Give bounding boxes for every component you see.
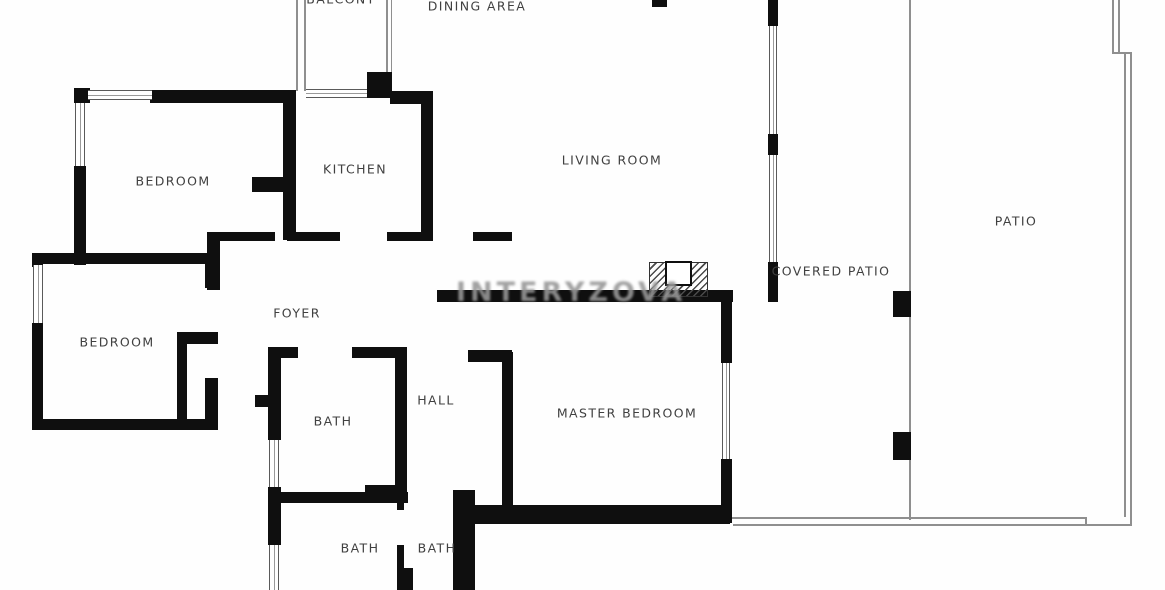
patio-east-edge-upper-inner — [1118, 0, 1120, 54]
room-label-living-room: LIVING ROOM — [562, 153, 662, 168]
patio-south-edge-inner — [730, 517, 1086, 519]
wall — [268, 395, 281, 440]
patio-east-edge-upper-outer — [1112, 0, 1114, 54]
patio-east-edge-lower-outer — [1130, 52, 1132, 524]
wall — [387, 232, 433, 241]
wall — [268, 502, 281, 545]
window — [306, 89, 367, 98]
room-label-bedroom-2: BEDROOM — [79, 335, 154, 350]
window — [769, 155, 777, 262]
wall — [283, 90, 296, 240]
patio-south-edge-step — [1085, 517, 1087, 526]
wall — [205, 378, 218, 430]
window — [33, 265, 43, 323]
wall — [150, 90, 296, 103]
room-label-master-bedroom: MASTER BEDROOM — [557, 406, 697, 421]
balcony-right-wall-outer — [386, 0, 388, 73]
room-label-foyer: FOYER — [273, 306, 321, 321]
room-label-bath-1: BATH — [314, 414, 353, 429]
window — [769, 26, 777, 134]
balcony-left-wall-inner — [304, 0, 306, 91]
wall — [768, 134, 778, 155]
patio-east-edge-step — [1112, 52, 1132, 54]
patio-pillar — [893, 432, 911, 460]
wall — [205, 253, 218, 288]
patio-pillar — [893, 291, 911, 317]
patio-south-edge-outer — [733, 524, 1132, 526]
wall — [367, 72, 392, 98]
room-label-kitchen: KITCHEN — [323, 162, 387, 177]
window — [269, 440, 279, 487]
wall — [502, 352, 513, 522]
room-label-dining-area: DINING AREA — [428, 0, 526, 14]
wall — [287, 232, 340, 241]
wall — [177, 344, 187, 419]
watermark: INTERYZOVA — [456, 277, 776, 309]
wall — [397, 492, 404, 510]
wall — [177, 332, 218, 344]
wall — [459, 505, 730, 524]
wall — [721, 302, 732, 363]
wall — [32, 323, 43, 430]
window — [75, 103, 85, 166]
room-label-covered-patio: COVERED PATIO — [772, 264, 891, 279]
room-label-balcony: BALCONY — [306, 0, 375, 7]
wall — [74, 166, 86, 265]
room-label-bath-2: BATH — [341, 541, 380, 556]
room-label-bath-3: BATH — [418, 541, 457, 556]
wall — [652, 0, 667, 7]
wall — [252, 177, 296, 192]
window — [88, 90, 152, 100]
wall — [33, 253, 214, 264]
wall — [397, 568, 413, 590]
window — [722, 363, 730, 459]
wall — [33, 419, 218, 430]
wall — [421, 91, 433, 241]
balcony-right-wall-inner — [391, 0, 392, 73]
room-label-hall: HALL — [417, 393, 454, 408]
wall — [270, 492, 408, 503]
wall — [768, 0, 778, 26]
window — [269, 545, 279, 590]
wall — [473, 232, 512, 241]
floor-plan: BALCONY DINING AREA BEDROOM KITCHEN LIVI… — [0, 0, 1165, 590]
wall — [395, 347, 407, 498]
patio-east-edge-lower-inner — [1124, 52, 1126, 517]
balcony-left-wall-outer — [296, 0, 298, 91]
room-label-patio: PATIO — [995, 214, 1037, 229]
room-label-bedroom-1: BEDROOM — [135, 174, 210, 189]
